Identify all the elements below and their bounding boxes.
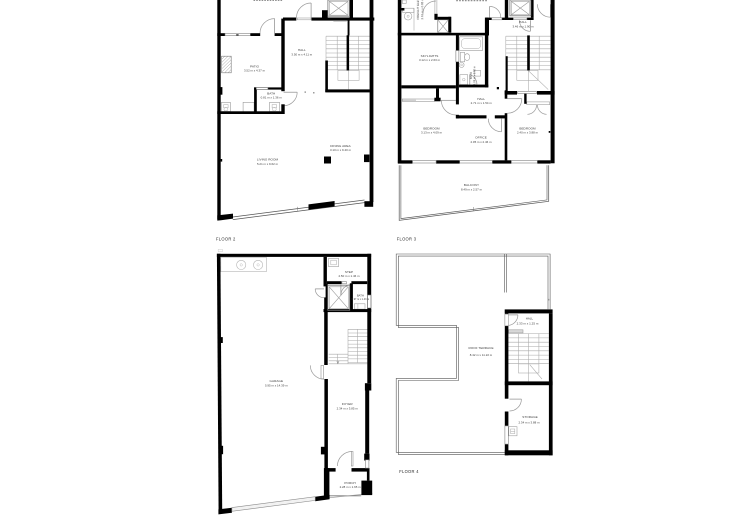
svg-text:2.71 m x 1.54 m: 2.71 m x 1.54 m xyxy=(471,101,493,105)
svg-text:FLOOR 2: FLOOR 2 xyxy=(216,237,236,242)
svg-text:2.61 m x 0.95 m: 2.61 m x 0.95 m xyxy=(420,0,424,20)
svg-text:HALL: HALL xyxy=(298,48,306,52)
svg-text:2.34 m x 3.85 m: 2.34 m x 3.85 m xyxy=(337,406,359,410)
svg-text:3.10 m x 9.40 m: 3.10 m x 9.40 m xyxy=(330,148,352,152)
svg-text:FLOOR 3: FLOOR 3 xyxy=(397,237,417,242)
svg-text:3.52 m x 4.37 m: 3.52 m x 4.37 m xyxy=(244,69,266,73)
svg-text:5.95 m x 14.39 m: 5.95 m x 14.39 m xyxy=(265,383,288,387)
svg-text:BATH: BATH xyxy=(469,72,473,79)
svg-text:STORAGE: STORAGE xyxy=(522,415,537,419)
svg-text:3.50 m x 4.11 m: 3.50 m x 4.11 m xyxy=(291,53,312,57)
svg-text:8.49 m x 2.57 m: 8.49 m x 2.57 m xyxy=(461,187,483,191)
svg-text:5.21 m x 9.62 m: 5.21 m x 9.62 m xyxy=(257,162,279,166)
svg-text:FLOOR 4: FLOOR 4 xyxy=(399,469,419,474)
svg-text:DINING AREA: DINING AREA xyxy=(330,144,351,148)
svg-text:0.97 m x 1.43 m: 0.97 m x 1.43 m xyxy=(352,298,369,301)
svg-text:2.05 m x 2.46 m: 2.05 m x 2.46 m xyxy=(470,140,492,144)
svg-text:BEDROOM: BEDROOM xyxy=(519,126,536,130)
svg-text:2.50 m x 1.46 m: 2.50 m x 1.46 m xyxy=(338,274,360,278)
svg-text:3.12 m x 2.63 m: 3.12 m x 2.63 m xyxy=(419,58,441,62)
svg-text:ROOF TERRACE: ROOF TERRACE xyxy=(468,346,493,350)
svg-text:3.13 m x 4.09 m: 3.13 m x 4.09 m xyxy=(421,131,443,135)
svg-text:HALL: HALL xyxy=(526,317,534,321)
svg-text:LIVING ROOM: LIVING ROOM xyxy=(257,157,279,161)
svg-text:8.42 m x 11.22 m: 8.42 m x 11.22 m xyxy=(470,353,493,357)
svg-text:BATH: BATH xyxy=(357,293,364,297)
svg-text:0.81 m x 1.36 m: 0.81 m x 1.36 m xyxy=(261,96,283,100)
svg-text:3.46 m x 1.90 m: 3.46 m x 1.90 m xyxy=(512,24,534,28)
svg-text:2.28 m x 1.65 m: 2.28 m x 1.65 m xyxy=(340,485,362,489)
svg-text:2.40 m x 3.88 m: 2.40 m x 3.88 m xyxy=(517,131,539,135)
svg-text:BEDROOM: BEDROOM xyxy=(423,126,440,130)
svg-text:2.33 m x 1.25 m: 2.33 m x 1.25 m xyxy=(517,321,539,325)
svg-text:1.09 m x 2.92 m: 1.09 m x 2.92 m xyxy=(472,66,476,85)
svg-text:SKYLIGHTS: SKYLIGHTS xyxy=(421,54,439,58)
svg-text:2.34 m x 3.88 m: 2.34 m x 3.88 m xyxy=(518,420,540,424)
